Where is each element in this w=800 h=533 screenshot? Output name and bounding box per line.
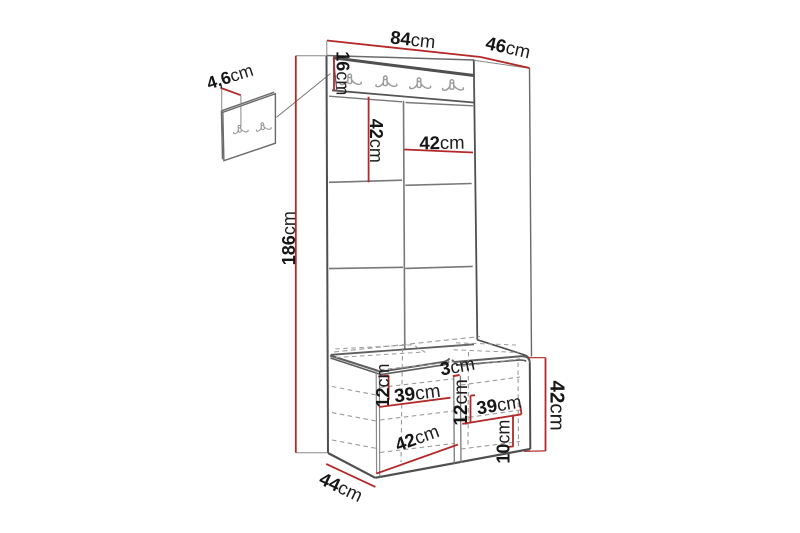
svg-text:16cm: 16cm <box>333 51 353 95</box>
svg-text:42cm: 42cm <box>419 132 465 154</box>
svg-text:10cm: 10cm <box>494 420 514 464</box>
svg-text:186cm: 186cm <box>279 211 299 265</box>
svg-text:12cm: 12cm <box>373 363 393 407</box>
svg-text:42cm: 42cm <box>366 119 386 163</box>
svg-text:42cm: 42cm <box>545 381 568 431</box>
svg-text:12cm: 12cm <box>451 379 472 425</box>
